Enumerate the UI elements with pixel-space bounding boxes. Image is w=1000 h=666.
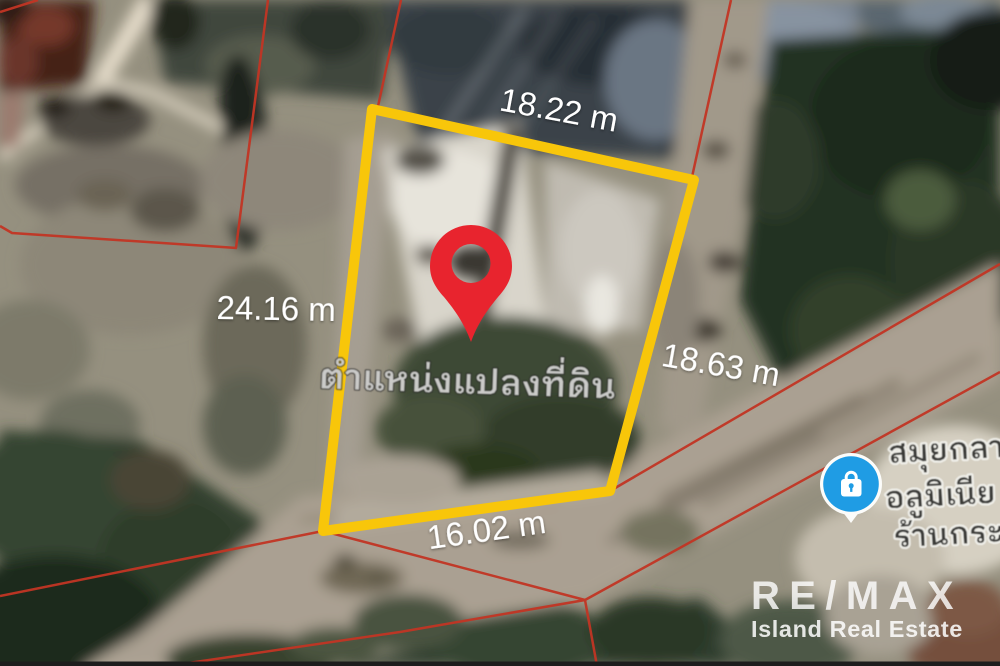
svg-text:Island Real Estate: Island Real Estate: [751, 616, 963, 642]
svg-text:RE/MAX: RE/MAX: [751, 574, 963, 618]
svg-text:24.16 m: 24.16 m: [216, 289, 336, 328]
